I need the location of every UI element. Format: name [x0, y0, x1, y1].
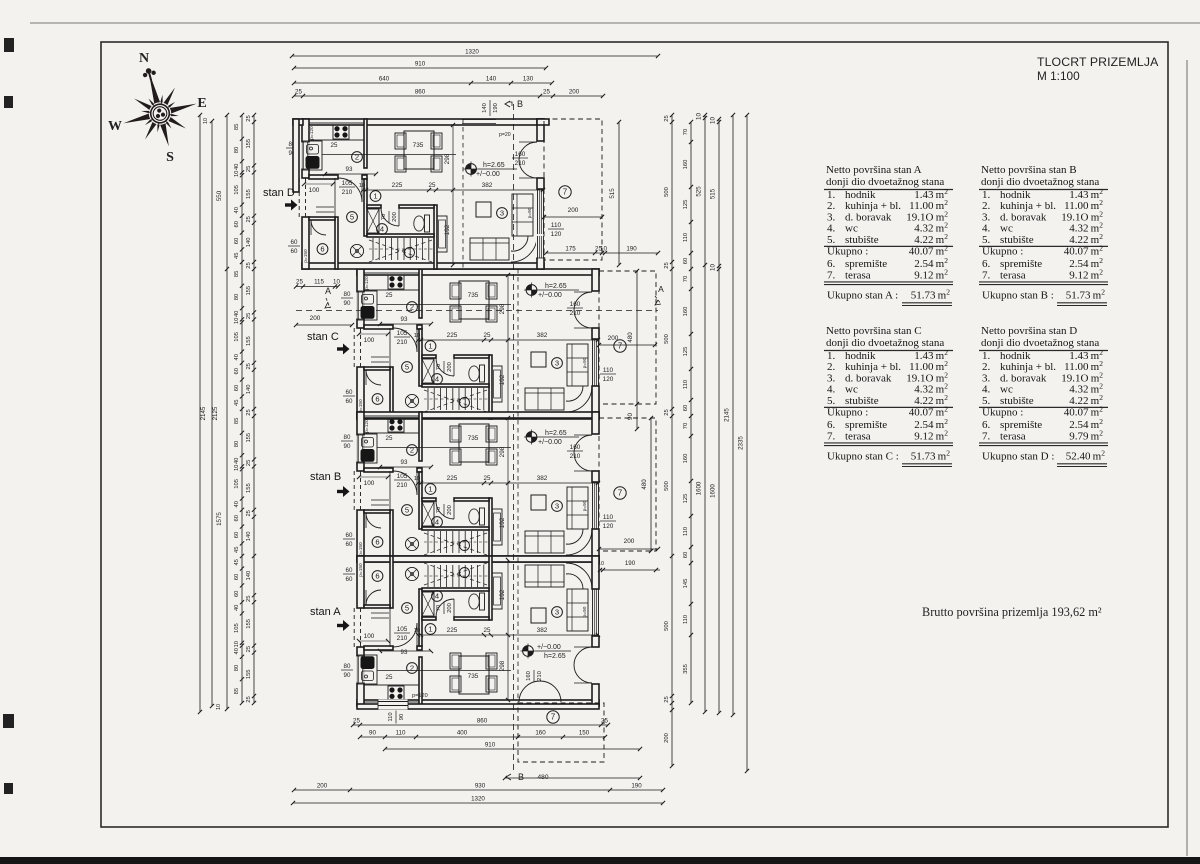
svg-text:stubište: stubište [845, 234, 879, 246]
svg-text:155: 155 [246, 619, 252, 629]
svg-text:2: 2 [410, 664, 414, 673]
svg-text:192: 192 [499, 374, 506, 385]
svg-text:515: 515 [609, 188, 616, 199]
svg-text:1.43 m2: 1.43 m2 [1069, 348, 1103, 362]
svg-text:130: 130 [523, 76, 534, 83]
svg-text:10: 10 [598, 561, 604, 567]
svg-text:kuhinja + bl.: kuhinja + bl. [845, 361, 901, 373]
svg-text:A: A [325, 286, 331, 296]
svg-text:25: 25 [664, 115, 670, 121]
svg-text:60: 60 [234, 221, 240, 227]
svg-text:4: 4 [435, 518, 439, 527]
svg-text:175: 175 [565, 245, 576, 252]
svg-text:355: 355 [683, 664, 689, 674]
svg-text:160: 160 [683, 160, 689, 170]
svg-text:480: 480 [537, 774, 548, 781]
svg-text:60: 60 [346, 398, 353, 405]
svg-text:1: 1 [428, 342, 432, 351]
svg-text:donji dio dvoetažnog stana: donji dio dvoetažnog stana [981, 176, 1099, 188]
svg-text:60: 60 [234, 385, 240, 391]
svg-text:4.: 4. [827, 384, 836, 396]
svg-text:hodnik: hodnik [845, 189, 876, 201]
svg-text:M 1:100: M 1:100 [1037, 69, 1080, 83]
svg-text:80: 80 [234, 147, 240, 153]
svg-text:donji dio dvoetažnog stana: donji dio dvoetažnog stana [826, 337, 944, 349]
svg-text:Ukupno stan D :: Ukupno stan D : [982, 451, 1054, 463]
svg-text:105: 105 [234, 623, 240, 633]
svg-text:10: 10 [710, 264, 717, 271]
svg-text:105: 105 [397, 330, 408, 337]
svg-text:1600: 1600 [710, 484, 717, 498]
svg-text:25: 25 [664, 409, 670, 415]
svg-text:70: 70 [683, 276, 689, 282]
svg-text:2.54 m2: 2.54 m2 [914, 417, 948, 431]
svg-text:3.: 3. [982, 211, 991, 223]
svg-text:10: 10 [414, 628, 420, 634]
svg-text:160: 160 [570, 301, 581, 308]
svg-text:1: 1 [428, 625, 432, 634]
svg-text:140: 140 [246, 571, 252, 581]
svg-text:1.: 1. [982, 189, 991, 201]
svg-text:19.1O m2: 19.1O m2 [1061, 209, 1103, 223]
svg-text:155: 155 [246, 483, 252, 493]
svg-text:25: 25 [484, 475, 491, 482]
svg-text:60: 60 [291, 239, 298, 246]
svg-text:19.1O m2: 19.1O m2 [906, 370, 948, 384]
svg-text:Ukupno :: Ukupno : [827, 407, 868, 419]
svg-text:10: 10 [234, 318, 240, 324]
svg-text:donji dio dvoetažnog stana: donji dio dvoetažnog stana [981, 337, 1099, 349]
svg-text:140: 140 [246, 532, 252, 542]
svg-text:2: 2 [355, 153, 359, 162]
svg-text:6: 6 [375, 538, 379, 547]
svg-text:860: 860 [415, 89, 426, 96]
svg-text:1.43 m2: 1.43 m2 [914, 348, 948, 362]
svg-text:Ukupno :: Ukupno : [982, 246, 1023, 258]
svg-text:155: 155 [246, 669, 252, 679]
svg-text:200: 200 [447, 603, 453, 613]
svg-text:40: 40 [234, 311, 240, 317]
svg-text:B: B [517, 99, 523, 109]
svg-text:10: 10 [234, 465, 240, 471]
svg-text:25: 25 [484, 332, 491, 339]
svg-text:d. boravak: d. boravak [845, 372, 892, 384]
svg-text:2.: 2. [827, 361, 836, 373]
svg-text:5: 5 [350, 213, 354, 222]
svg-text:160: 160 [535, 730, 546, 737]
svg-text:25: 25 [484, 627, 491, 634]
svg-text:4.22 m2: 4.22 m2 [914, 232, 948, 246]
svg-text:210: 210 [537, 671, 543, 681]
svg-text:45: 45 [234, 399, 240, 405]
svg-text:145: 145 [683, 579, 689, 589]
svg-text:9.12 m2: 9.12 m2 [1069, 268, 1103, 282]
svg-text:80: 80 [234, 294, 240, 300]
svg-text:155: 155 [246, 286, 252, 296]
svg-text:4.22 m2: 4.22 m2 [1069, 232, 1103, 246]
svg-text:80: 80 [234, 665, 240, 671]
svg-text:80: 80 [344, 291, 351, 298]
svg-text:10: 10 [234, 641, 240, 647]
svg-text:25: 25 [246, 313, 252, 319]
svg-text:200: 200 [624, 538, 635, 545]
svg-text:160: 160 [683, 307, 689, 317]
svg-text:225: 225 [447, 475, 458, 482]
svg-text:2.54 m2: 2.54 m2 [1069, 256, 1103, 270]
svg-text:3: 3 [555, 502, 559, 511]
svg-text:terasa: terasa [845, 270, 871, 282]
svg-text:E: E [197, 96, 206, 111]
svg-text:150: 150 [579, 730, 590, 737]
svg-text:60: 60 [683, 552, 689, 558]
svg-text:Ukupno stan B :: Ukupno stan B : [982, 290, 1054, 302]
svg-text:5: 5 [405, 506, 409, 515]
svg-text:45: 45 [234, 559, 240, 565]
svg-text:60: 60 [234, 574, 240, 580]
svg-text:110: 110 [683, 233, 689, 242]
svg-text:6.: 6. [982, 258, 991, 270]
svg-text:140: 140 [246, 385, 252, 395]
svg-text:spremište: spremište [1000, 258, 1042, 270]
svg-text:120: 120 [551, 231, 562, 238]
svg-text:910: 910 [485, 742, 496, 749]
svg-text:terasa: terasa [845, 431, 871, 443]
svg-text:2.: 2. [982, 361, 991, 373]
svg-text:5: 5 [405, 363, 409, 372]
svg-text:19.1O m2: 19.1O m2 [906, 209, 948, 223]
svg-text:p=90: p=90 [582, 500, 588, 511]
svg-text:6.: 6. [982, 419, 991, 431]
svg-text:210: 210 [570, 453, 581, 460]
svg-text:1600: 1600 [696, 481, 703, 495]
svg-text:910: 910 [415, 61, 426, 68]
svg-text:125: 125 [683, 494, 689, 504]
svg-text:155: 155 [246, 139, 252, 149]
svg-text:Ukupno :: Ukupno : [982, 407, 1023, 419]
svg-text:1320: 1320 [465, 49, 479, 56]
svg-text:110: 110 [551, 222, 562, 229]
svg-text:298: 298 [499, 660, 506, 671]
svg-text:7: 7 [551, 713, 556, 722]
svg-text:120: 120 [603, 523, 614, 530]
svg-text:3: 3 [555, 608, 559, 617]
svg-text:192: 192 [499, 589, 506, 600]
svg-text:160: 160 [683, 454, 689, 464]
svg-text:1320: 1320 [471, 796, 485, 803]
svg-text:70: 70 [381, 214, 387, 220]
svg-text:60: 60 [234, 368, 240, 374]
svg-text:3.: 3. [982, 372, 991, 384]
svg-text:10: 10 [696, 113, 703, 120]
svg-text:93: 93 [346, 166, 353, 173]
svg-text:7.: 7. [982, 431, 991, 443]
svg-text:2145: 2145 [724, 408, 731, 422]
svg-text:110: 110 [388, 712, 394, 721]
svg-text:140: 140 [482, 103, 488, 113]
svg-text:10: 10 [203, 118, 209, 124]
svg-text:40: 40 [234, 648, 240, 654]
svg-text:45: 45 [234, 252, 240, 258]
svg-text:105: 105 [234, 185, 240, 195]
svg-text:10: 10 [333, 279, 340, 286]
svg-text:p=90: p=90 [582, 606, 588, 617]
svg-text:70: 70 [436, 507, 442, 513]
svg-text:210: 210 [397, 339, 408, 346]
svg-text:25: 25 [353, 718, 360, 725]
svg-text:80: 80 [344, 434, 351, 441]
svg-text:40: 40 [234, 501, 240, 507]
svg-text:382: 382 [537, 332, 548, 339]
svg-text:60: 60 [234, 532, 240, 538]
svg-text:6: 6 [320, 245, 324, 254]
svg-text:p=150: p=150 [358, 563, 364, 577]
svg-text:25: 25 [601, 718, 608, 725]
svg-text:25: 25 [296, 279, 303, 286]
svg-text:2: 2 [410, 446, 414, 455]
svg-text:p=90: p=90 [582, 357, 588, 368]
svg-text:40.07 m2: 40.07 m2 [1064, 244, 1104, 258]
svg-text:d. boravak: d. boravak [845, 211, 892, 223]
svg-text:+/−0.00: +/−0.00 [537, 644, 561, 651]
svg-text:h=2.65: h=2.65 [545, 430, 567, 437]
svg-text:4.32 m2: 4.32 m2 [914, 382, 948, 396]
svg-text:5.: 5. [982, 234, 991, 246]
svg-text:105: 105 [234, 479, 240, 489]
svg-text:4.: 4. [827, 223, 836, 235]
svg-text:70: 70 [436, 364, 442, 370]
svg-text:Netto površina stan B: Netto površina stan B [981, 164, 1077, 176]
svg-text:60: 60 [346, 389, 353, 396]
svg-text:3.: 3. [827, 372, 836, 384]
svg-text:Ukupno stan A :: Ukupno stan A : [827, 290, 898, 302]
svg-text:2.: 2. [982, 200, 991, 212]
svg-text:52.40 m2: 52.40 m2 [1066, 449, 1106, 463]
svg-text:160: 160 [515, 151, 526, 158]
svg-text:10: 10 [414, 333, 420, 339]
svg-text:donji dio dvoetažnog stana: donji dio dvoetažnog stana [826, 176, 944, 188]
svg-text:210: 210 [397, 482, 408, 489]
svg-text:4: 4 [435, 375, 439, 384]
svg-text:80: 80 [344, 663, 351, 670]
svg-text:11.00 m2: 11.00 m2 [1064, 198, 1103, 212]
svg-text:TLOCRT PRIZEMLJA: TLOCRT PRIZEMLJA [1037, 55, 1159, 69]
svg-text:S: S [166, 150, 174, 165]
svg-text:6.: 6. [827, 419, 836, 431]
svg-text:hodnik: hodnik [1000, 189, 1031, 201]
svg-text:51.73 m2: 51.73 m2 [911, 449, 951, 463]
svg-text:25: 25 [295, 89, 302, 96]
svg-text:80: 80 [234, 441, 240, 447]
svg-text:192: 192 [499, 517, 506, 528]
svg-text:2125: 2125 [212, 406, 219, 420]
svg-text:200: 200 [447, 505, 453, 515]
svg-text:9.79 m2: 9.79 m2 [1069, 429, 1103, 443]
svg-text:19.1O m2: 19.1O m2 [1061, 370, 1103, 384]
svg-text:1.: 1. [827, 350, 836, 362]
svg-text:10: 10 [710, 117, 717, 124]
svg-text:70: 70 [683, 129, 689, 135]
svg-text:3: 3 [555, 359, 559, 368]
svg-text:93: 93 [401, 316, 408, 323]
svg-text:terasa: terasa [1000, 431, 1026, 443]
svg-text:A: A [658, 284, 664, 294]
svg-text:60: 60 [291, 248, 298, 255]
svg-text:Ukupno stan C :: Ukupno stan C : [827, 451, 899, 463]
svg-text:105: 105 [342, 180, 353, 187]
svg-text:190: 190 [626, 245, 637, 252]
svg-text:terasa: terasa [1000, 270, 1026, 282]
svg-text:7.: 7. [982, 270, 991, 282]
svg-text:298: 298 [444, 153, 451, 164]
svg-text:p=150: p=150 [303, 249, 309, 263]
svg-text:4.22 m2: 4.22 m2 [1069, 393, 1103, 407]
svg-text:25: 25 [246, 460, 252, 466]
svg-text:W: W [108, 119, 122, 134]
svg-text:110: 110 [603, 514, 614, 521]
svg-text:200: 200 [392, 212, 398, 222]
svg-text:hodnik: hodnik [1000, 350, 1031, 362]
svg-text:1.: 1. [982, 350, 991, 362]
svg-text:155: 155 [246, 433, 252, 443]
svg-text:90: 90 [399, 714, 405, 720]
svg-text:1.43 m2: 1.43 m2 [914, 187, 948, 201]
svg-text:stan D: stan D [263, 187, 295, 199]
svg-text:90: 90 [627, 413, 634, 420]
svg-text:wc: wc [1000, 384, 1013, 396]
svg-text:3.: 3. [827, 211, 836, 223]
svg-text:480: 480 [627, 332, 634, 343]
svg-text:d. boravak: d. boravak [1000, 372, 1047, 384]
svg-text:100: 100 [364, 633, 375, 640]
svg-text:60: 60 [346, 532, 353, 539]
svg-text:25: 25 [246, 409, 252, 415]
svg-text:1575: 1575 [216, 512, 223, 526]
svg-text:25: 25 [331, 142, 338, 149]
svg-text:190: 190 [625, 560, 636, 567]
svg-text:Netto površina stan C: Netto površina stan C [826, 325, 922, 337]
svg-text:9.12 m2: 9.12 m2 [914, 429, 948, 443]
svg-text:930: 930 [475, 783, 486, 790]
svg-text:25: 25 [664, 262, 670, 268]
svg-text:298: 298 [499, 446, 506, 457]
svg-text:B: B [518, 772, 524, 782]
svg-text:10: 10 [600, 245, 607, 252]
svg-text:4: 4 [380, 225, 384, 234]
svg-text:51.73 m2: 51.73 m2 [911, 288, 951, 302]
svg-text:100: 100 [309, 187, 320, 194]
svg-text:stubište: stubište [1000, 234, 1034, 246]
svg-text:60: 60 [683, 405, 689, 411]
svg-text:wc: wc [1000, 223, 1013, 235]
svg-text:10: 10 [414, 476, 420, 482]
svg-text:p=120: p=120 [309, 126, 315, 140]
svg-text:155: 155 [246, 336, 252, 346]
svg-text:1.43 m2: 1.43 m2 [1069, 187, 1103, 201]
svg-text:40: 40 [234, 164, 240, 170]
svg-text:d. boravak: d. boravak [1000, 211, 1047, 223]
svg-text:515: 515 [710, 188, 717, 199]
svg-text:100: 100 [364, 480, 375, 487]
svg-text:p=90: p=90 [527, 207, 533, 218]
svg-text:hodnik: hodnik [845, 350, 876, 362]
svg-text:6.: 6. [827, 258, 836, 270]
svg-text:stan B: stan B [310, 471, 341, 483]
svg-text:+/−0.00: +/−0.00 [476, 171, 500, 178]
svg-text:25: 25 [246, 510, 252, 516]
svg-text:40: 40 [234, 605, 240, 611]
svg-text:382: 382 [537, 475, 548, 482]
svg-text:45: 45 [234, 546, 240, 552]
svg-text:11.00 m2: 11.00 m2 [1064, 359, 1103, 373]
svg-text:735: 735 [468, 673, 479, 680]
svg-text:225: 225 [447, 332, 458, 339]
svg-text:25: 25 [386, 292, 393, 299]
svg-text:25: 25 [246, 262, 252, 268]
svg-text:spremište: spremište [1000, 419, 1042, 431]
svg-text:10: 10 [234, 171, 240, 177]
svg-text:480: 480 [641, 479, 648, 490]
svg-text:25: 25 [386, 435, 393, 442]
svg-text:382: 382 [482, 182, 493, 189]
svg-text:90: 90 [369, 730, 376, 737]
svg-text:60: 60 [683, 258, 689, 264]
svg-text:192: 192 [444, 224, 451, 235]
svg-text:5.: 5. [827, 234, 836, 246]
svg-text:110: 110 [683, 527, 689, 536]
svg-text:25: 25 [246, 363, 252, 369]
svg-text:1: 1 [373, 192, 377, 201]
svg-text:2145: 2145 [200, 406, 207, 420]
svg-text:Netto površina stan D: Netto površina stan D [981, 325, 1077, 337]
svg-text:210: 210 [397, 635, 408, 642]
svg-text:51.73 m2: 51.73 m2 [1066, 288, 1106, 302]
svg-text:110: 110 [683, 615, 689, 624]
svg-text:Ukupno :: Ukupno : [827, 246, 868, 258]
svg-text:25: 25 [664, 696, 670, 702]
svg-text:10: 10 [216, 704, 222, 710]
svg-text:200: 200 [664, 733, 670, 743]
svg-text:spremište: spremište [845, 258, 887, 270]
svg-text:550: 550 [216, 190, 223, 201]
svg-text:N: N [139, 51, 149, 66]
svg-text:105: 105 [397, 626, 408, 633]
svg-text:kuhinja + bl.: kuhinja + bl. [1000, 361, 1056, 373]
svg-text:200: 200 [569, 89, 580, 96]
svg-text:110: 110 [603, 367, 614, 374]
svg-text:120: 120 [603, 376, 614, 383]
svg-text:110: 110 [683, 380, 689, 389]
svg-text:1: 1 [428, 485, 432, 494]
svg-text:4.: 4. [982, 384, 991, 396]
svg-text:105: 105 [397, 473, 408, 480]
svg-text:735: 735 [468, 292, 479, 299]
svg-text:90: 90 [344, 443, 351, 450]
svg-text:11.00 m2: 11.00 m2 [909, 198, 948, 212]
svg-text:3: 3 [500, 209, 504, 218]
svg-text:Netto površina stan A: Netto površina stan A [826, 164, 922, 176]
svg-text:25: 25 [246, 115, 252, 121]
svg-text:kuhinja + bl.: kuhinja + bl. [1000, 200, 1056, 212]
svg-text:4.22 m2: 4.22 m2 [914, 393, 948, 407]
svg-text:7: 7 [563, 188, 568, 197]
svg-text:210: 210 [570, 310, 581, 317]
svg-text:wc: wc [845, 384, 858, 396]
svg-text:2.54 m2: 2.54 m2 [914, 256, 948, 270]
svg-text:200: 200 [568, 207, 579, 214]
svg-text:93: 93 [401, 649, 408, 656]
svg-text:25: 25 [246, 646, 252, 652]
svg-text:2335: 2335 [738, 436, 745, 450]
